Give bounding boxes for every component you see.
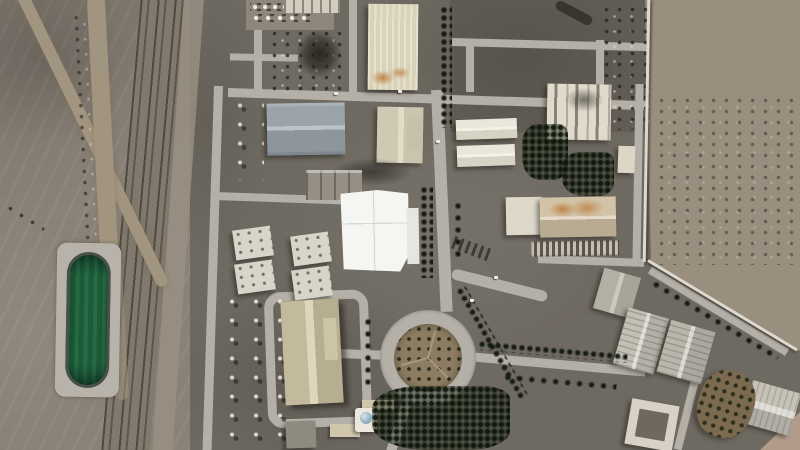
flat-block-nw: [232, 226, 274, 261]
satellite-image: [0, 0, 800, 450]
truck-lot-south: [220, 292, 286, 450]
truck-lot-west: [228, 96, 264, 180]
vehicle: [494, 276, 498, 279]
warehouse-bluegray: [267, 102, 346, 155]
flat-block-sw: [234, 260, 276, 295]
vehicle: [334, 92, 338, 95]
tree-row-roundabout-west: [362, 316, 376, 386]
warehouse-beige-large: [368, 4, 419, 90]
building-rust-stained: [540, 196, 617, 237]
tree-row-north: [440, 6, 452, 128]
flat-block-ne: [290, 232, 332, 267]
vehicle: [470, 299, 474, 302]
vehicle: [436, 140, 440, 143]
park-evergreens: [372, 386, 510, 450]
central-hall-annex: [407, 208, 420, 264]
warehouse-white-gable-b: [457, 144, 516, 167]
tree-row-central-east: [452, 200, 461, 258]
warehouse-tan-annex: [323, 318, 338, 361]
tree-row-central-avenue: [420, 186, 433, 278]
mosque-dome: [360, 412, 372, 424]
road-north-stub-2: [349, 0, 357, 92]
rooftop-units-north: [284, 0, 340, 13]
reservoir-pool: [65, 252, 111, 389]
building-gray-flat-south: [286, 420, 317, 448]
courtyard-building: [624, 398, 679, 450]
vehicle: [398, 90, 402, 93]
flat-block-se: [291, 266, 333, 301]
desert-rubble-field: [655, 95, 797, 265]
building-white-wing: [506, 197, 543, 236]
container-row-2: [250, 14, 314, 22]
parking-row-cars: [531, 240, 619, 257]
warehouse-white-gable-a: [456, 118, 518, 140]
tree-grove-east-2: [562, 152, 614, 196]
road-lot-divider-1: [466, 40, 474, 92]
building-small-east: [618, 146, 636, 174]
rubble-blob: [296, 30, 342, 78]
central-white-hall: [340, 189, 409, 272]
building-cream-wing: [407, 117, 424, 151]
